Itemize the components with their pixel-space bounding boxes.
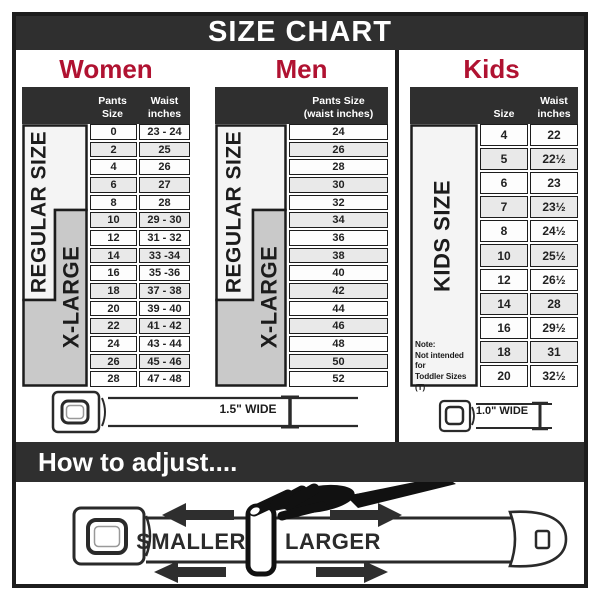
- arrow-left-icon: [162, 503, 234, 527]
- table-row: 26 45 - 46: [90, 354, 190, 370]
- poster-frame: SIZE CHART Women Men Kids Pants Size Wai…: [12, 12, 588, 588]
- pants-size-cell: 12: [90, 230, 137, 246]
- size-cell: 6: [480, 172, 528, 194]
- waist-cell: 50: [289, 354, 388, 370]
- table-row: 34: [289, 212, 388, 228]
- table-row: 8 24½: [480, 220, 578, 242]
- waist-cell: 29 - 30: [139, 212, 190, 228]
- waist-cell: 24½: [530, 220, 578, 242]
- table-row: 10 25½: [480, 244, 578, 266]
- waist-cell: 22: [530, 124, 578, 146]
- pants-size-cell: 20: [90, 301, 137, 317]
- kids-col-waist: Waist inches: [530, 87, 578, 124]
- table-row: 10 29 - 30: [90, 212, 190, 228]
- section-divider: [395, 50, 399, 442]
- table-row: 0 23 - 24: [90, 124, 190, 140]
- toddler-note: Note: Not intended for Toddler Sizes (T): [415, 340, 475, 393]
- table-row: 8 28: [90, 195, 190, 211]
- pants-size-cell: 0: [90, 124, 137, 140]
- table-row: 4 26: [90, 159, 190, 175]
- adjuster-slider: [248, 506, 274, 574]
- table-row: 7 23½: [480, 196, 578, 218]
- table-row: 2 25: [90, 142, 190, 158]
- pants-size-cell: 16: [90, 265, 137, 281]
- waist-cell: 26: [289, 142, 388, 158]
- size-cell: 4: [480, 124, 528, 146]
- waist-cell: 32½: [530, 365, 578, 387]
- women-heading: Women: [22, 54, 190, 84]
- waist-cell: 22½: [530, 148, 578, 170]
- waist-cell: 23: [530, 172, 578, 194]
- waist-cell: 52: [289, 371, 388, 387]
- waist-cell: 43 - 44: [139, 336, 190, 352]
- table-row: 16 29½: [480, 317, 578, 339]
- waist-cell: 26½: [530, 269, 578, 291]
- waist-cell: 24: [289, 124, 388, 140]
- arrow-right-icon: [330, 503, 402, 527]
- table-row: 46: [289, 318, 388, 334]
- table-row: 24: [289, 124, 388, 140]
- waist-cell: 41 - 42: [139, 318, 190, 334]
- waist-cell: 35 -36: [139, 265, 190, 281]
- table-row: 38: [289, 248, 388, 264]
- waist-cell: 32: [289, 195, 388, 211]
- pants-size-cell: 8: [90, 195, 137, 211]
- adult-belt-width-label: 1.5" WIDE: [196, 402, 300, 416]
- table-row: 6 23: [480, 172, 578, 194]
- arrow-left-icon: [154, 561, 226, 583]
- regular-size-label: REGULAR SIZE: [28, 131, 51, 293]
- waist-cell: 34: [289, 212, 388, 228]
- kids-col-size: Size: [480, 87, 528, 124]
- size-cell: 10: [480, 244, 528, 266]
- seatbelt-buckle-icon: [53, 392, 105, 432]
- table-row: 6 27: [90, 177, 190, 193]
- waist-cell: 42: [289, 283, 388, 299]
- size-tables-area: Women Men Kids Pants Size Waist inches R…: [16, 50, 584, 442]
- men-table-body: REGULAR SIZE X-LARGE 24 26: [215, 124, 388, 387]
- table-row: 4 22: [480, 124, 578, 146]
- size-cell: 5: [480, 148, 528, 170]
- size-cell: 12: [480, 269, 528, 291]
- men-rows: 24 26 28 30: [289, 124, 388, 387]
- table-row: 5 22½: [480, 148, 578, 170]
- waist-cell: 40: [289, 265, 388, 281]
- table-row: 28: [289, 159, 388, 175]
- table-row: 32: [289, 195, 388, 211]
- men-table-header: Pants Size (waist inches): [215, 87, 388, 124]
- waist-cell: 44: [289, 301, 388, 317]
- kids-rows: 4 22 5 22½ 6 23: [480, 124, 578, 387]
- belt-tip: [510, 512, 566, 567]
- women-rows: 0 23 - 24 2 25 4 26: [90, 124, 190, 387]
- regular-size-label: REGULAR SIZE: [223, 131, 246, 293]
- table-row: 40: [289, 265, 388, 281]
- men-size-groups: REGULAR SIZE X-LARGE: [215, 124, 287, 387]
- kids-size-label: KIDS SIZE: [430, 180, 455, 292]
- pants-size-cell: 24: [90, 336, 137, 352]
- table-row: 36: [289, 230, 388, 246]
- waist-cell: 30: [289, 177, 388, 193]
- pants-size-cell: 26: [90, 354, 137, 370]
- waist-cell: 28: [530, 293, 578, 315]
- waist-cell: 36: [289, 230, 388, 246]
- table-row: 24 43 - 44: [90, 336, 190, 352]
- pants-size-cell: 10: [90, 212, 137, 228]
- pants-size-cell: 18: [90, 283, 137, 299]
- waist-cell: 29½: [530, 317, 578, 339]
- women-col-pants-size: Pants Size: [88, 87, 137, 124]
- table-row: 26: [289, 142, 388, 158]
- men-col-pants-size: Pants Size (waist inches): [289, 87, 388, 124]
- size-cell: 8: [480, 220, 528, 242]
- table-row: 20 32½: [480, 365, 578, 387]
- waist-cell: 27: [139, 177, 190, 193]
- men-size-table: Pants Size (waist inches) REGULAR SIZE X…: [215, 87, 388, 387]
- size-cell: 14: [480, 293, 528, 315]
- table-row: 12 26½: [480, 269, 578, 291]
- page-title: SIZE CHART: [16, 16, 584, 50]
- table-row: 42: [289, 283, 388, 299]
- waist-cell: 23 - 24: [139, 124, 190, 140]
- women-table-header: Pants Size Waist inches: [22, 87, 190, 124]
- size-chart-poster: SIZE CHART Women Men Kids Pants Size Wai…: [0, 0, 600, 600]
- kids-size-table: Size Waist inches KIDS SIZE Note: Not in…: [410, 87, 578, 387]
- waist-cell: 47 - 48: [139, 371, 190, 387]
- adjust-illustration: SMALLER LARGER: [16, 482, 584, 584]
- waist-cell: 26: [139, 159, 190, 175]
- size-cell: 16: [480, 317, 528, 339]
- waist-cell: 23½: [530, 196, 578, 218]
- women-size-groups: REGULAR SIZE X-LARGE: [22, 124, 88, 387]
- size-cell: 18: [480, 341, 528, 363]
- table-row: 20 39 - 40: [90, 301, 190, 317]
- waist-cell: 25: [139, 142, 190, 158]
- table-row: 52: [289, 371, 388, 387]
- women-table-body: REGULAR SIZE X-LARGE 0 23 - 24 2: [22, 124, 190, 387]
- xlarge-label: X-LARGE: [59, 246, 84, 349]
- larger-label: LARGER: [278, 526, 388, 558]
- table-row: 12 31 - 32: [90, 230, 190, 246]
- men-heading: Men: [215, 54, 388, 84]
- arrow-right-icon: [316, 561, 388, 583]
- table-row: 28 47 - 48: [90, 371, 190, 387]
- women-col-waist: Waist inches: [139, 87, 190, 124]
- pants-size-cell: 4: [90, 159, 137, 175]
- waist-cell: 39 - 40: [139, 301, 190, 317]
- waist-cell: 31: [530, 341, 578, 363]
- kids-table-body: KIDS SIZE Note: Not intended for Toddler…: [410, 124, 578, 387]
- pants-size-cell: 14: [90, 248, 137, 264]
- kids-belt-width-label: 1.0" WIDE: [452, 405, 552, 417]
- waist-cell: 28: [289, 159, 388, 175]
- kids-table-header: Size Waist inches: [410, 87, 578, 124]
- table-row: 48: [289, 336, 388, 352]
- waist-cell: 33 -34: [139, 248, 190, 264]
- waist-cell: 31 - 32: [139, 230, 190, 246]
- table-row: 18 37 - 38: [90, 283, 190, 299]
- waist-cell: 38: [289, 248, 388, 264]
- size-cell: 20: [480, 365, 528, 387]
- waist-cell: 37 - 38: [139, 283, 190, 299]
- xlarge-label: X-LARGE: [257, 246, 282, 349]
- adjust-section-header: How to adjust....: [16, 442, 584, 482]
- waist-cell: 28: [139, 195, 190, 211]
- women-size-table: Pants Size Waist inches REGULAR SIZE X-L…: [22, 87, 190, 387]
- waist-cell: 48: [289, 336, 388, 352]
- table-row: 14 33 -34: [90, 248, 190, 264]
- table-row: 50: [289, 354, 388, 370]
- pants-size-cell: 28: [90, 371, 137, 387]
- pants-size-cell: 2: [90, 142, 137, 158]
- table-row: 44: [289, 301, 388, 317]
- smaller-label: SMALLER: [136, 526, 246, 558]
- kids-heading: Kids: [399, 54, 584, 84]
- size-cell: 7: [480, 196, 528, 218]
- table-row: 22 41 - 42: [90, 318, 190, 334]
- table-row: 30: [289, 177, 388, 193]
- waist-cell: 45 - 46: [139, 354, 190, 370]
- pants-size-cell: 22: [90, 318, 137, 334]
- table-row: 16 35 -36: [90, 265, 190, 281]
- waist-cell: 46: [289, 318, 388, 334]
- adjust-heading: How to adjust....: [16, 442, 584, 482]
- pants-size-cell: 6: [90, 177, 137, 193]
- table-row: 14 28: [480, 293, 578, 315]
- waist-cell: 25½: [530, 244, 578, 266]
- table-row: 18 31: [480, 341, 578, 363]
